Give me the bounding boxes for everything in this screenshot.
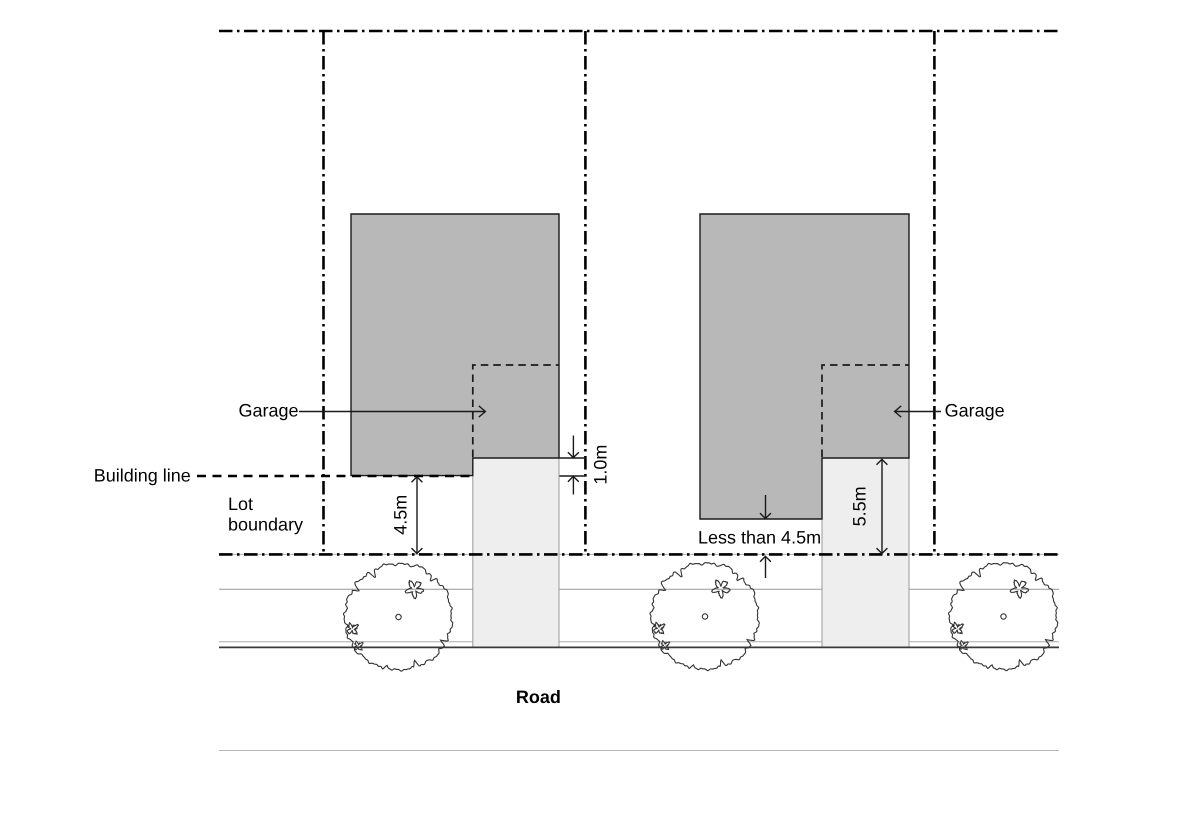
- svg-text:1.0m: 1.0m: [590, 445, 610, 485]
- svg-text:Garage: Garage: [945, 400, 1005, 420]
- svg-text:Road: Road: [516, 687, 561, 707]
- svg-text:4.5m: 4.5m: [391, 495, 411, 535]
- svg-text:Less than 4.5m: Less than 4.5m: [698, 527, 821, 547]
- svg-text:boundary: boundary: [228, 515, 303, 535]
- svg-text:Garage: Garage: [239, 400, 299, 420]
- svg-text:5.5m: 5.5m: [849, 486, 869, 526]
- svg-text:Building line: Building line: [94, 466, 191, 486]
- svg-text:Lot: Lot: [228, 494, 253, 514]
